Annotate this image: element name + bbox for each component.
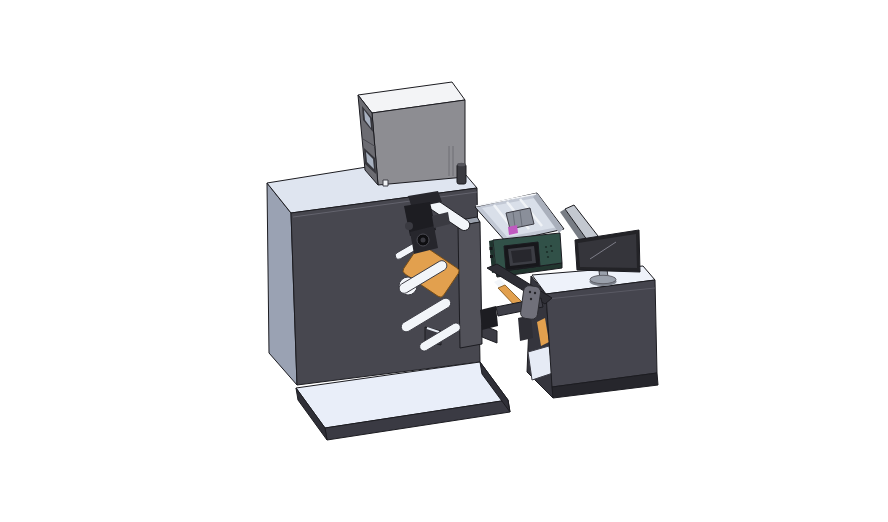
vent-dot — [547, 256, 549, 258]
desk — [527, 266, 658, 398]
roller-plate — [458, 222, 482, 348]
control-box-front — [372, 100, 465, 185]
pendant-dot — [530, 298, 532, 300]
stack-light-top — [457, 163, 466, 167]
vent-dot — [551, 250, 553, 252]
cad-render-canvas — [0, 0, 888, 522]
touchscreen-display — [511, 249, 532, 263]
control-box — [358, 82, 465, 186]
monitor-base — [590, 275, 616, 283]
vent-dot — [545, 246, 547, 248]
stack-light — [457, 163, 466, 184]
connector-square — [383, 180, 388, 186]
vent-dot — [550, 245, 552, 247]
pendant-dot — [534, 292, 536, 294]
printer-button — [490, 255, 493, 258]
drive-motor — [480, 306, 498, 330]
mech-knob-center — [421, 238, 426, 243]
printer-button — [490, 247, 493, 250]
cad-render-stage — [0, 0, 888, 522]
mech-knob-small — [405, 222, 413, 230]
desk-front — [546, 280, 657, 387]
vent-dot — [546, 251, 548, 253]
pendant-dot — [529, 291, 531, 293]
stack-light-body — [457, 164, 466, 184]
